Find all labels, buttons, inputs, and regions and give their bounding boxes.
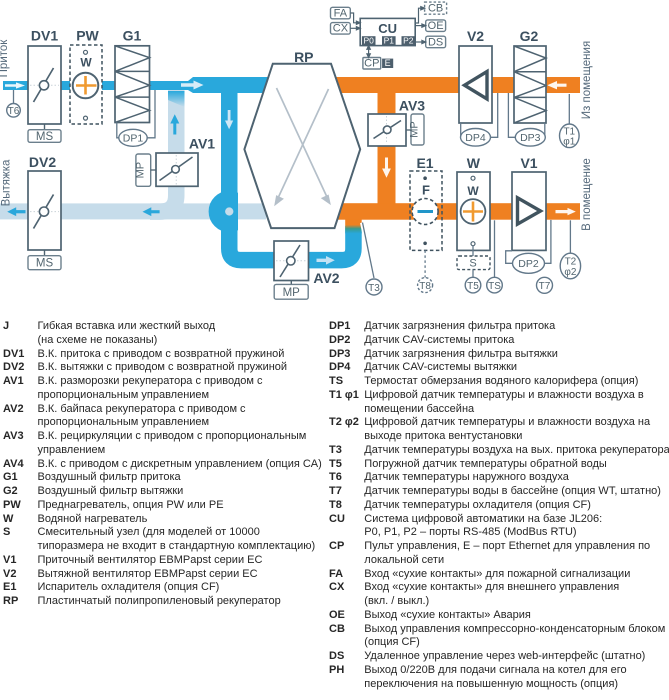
svg-text:E1: E1 <box>416 155 433 171</box>
svg-text:CU: CU <box>378 21 397 36</box>
svg-text:AV1: AV1 <box>189 136 215 152</box>
svg-text:W: W <box>467 184 479 198</box>
svg-text:AV3: AV3 <box>399 98 425 114</box>
svg-text:DP1: DP1 <box>123 133 144 145</box>
svg-text:F: F <box>422 183 430 198</box>
svg-text:MS: MS <box>36 258 54 270</box>
svg-text:CX: CX <box>333 23 349 35</box>
svg-text:Из помещения: Из помещения <box>581 41 593 119</box>
svg-text:OE: OE <box>428 20 444 32</box>
svg-text:T3: T3 <box>368 283 380 294</box>
svg-text:G1: G1 <box>123 28 142 44</box>
svg-text:DP3: DP3 <box>520 132 541 144</box>
svg-text:Вытяжка: Вытяжка <box>1 159 13 206</box>
svg-text:W: W <box>467 155 481 171</box>
svg-text:φ2: φ2 <box>564 267 576 278</box>
svg-text:E: E <box>385 58 391 68</box>
svg-text:V2: V2 <box>467 28 484 44</box>
svg-text:S: S <box>469 258 476 270</box>
svg-text:V1: V1 <box>520 155 537 171</box>
svg-text:CB: CB <box>428 3 443 15</box>
svg-text:T2: T2 <box>565 257 577 268</box>
svg-text:P0: P0 <box>363 35 374 45</box>
svg-text:AV2: AV2 <box>313 270 339 286</box>
svg-text:W: W <box>80 56 92 70</box>
svg-text:MS: MS <box>36 131 54 143</box>
svg-text:Приток: Приток <box>0 39 10 78</box>
svg-text:CP: CP <box>364 58 379 70</box>
svg-text:MP: MP <box>409 121 421 138</box>
svg-text:В помещение: В помещение <box>581 158 593 231</box>
svg-text:DV1: DV1 <box>31 28 58 44</box>
svg-text:PW: PW <box>76 28 99 44</box>
svg-text:MP: MP <box>134 162 146 179</box>
svg-text:T7: T7 <box>539 281 551 292</box>
svg-text:G2: G2 <box>520 28 539 44</box>
svg-text:P1: P1 <box>384 35 395 45</box>
svg-text:T6: T6 <box>8 106 20 117</box>
svg-text:T5: T5 <box>467 281 479 292</box>
svg-text:FA: FA <box>334 7 348 19</box>
svg-text:DP2: DP2 <box>518 258 539 270</box>
svg-text:DP4: DP4 <box>465 132 486 144</box>
svg-text:MP: MP <box>283 287 301 299</box>
svg-text:TS: TS <box>488 281 501 292</box>
svg-text:DV2: DV2 <box>29 154 56 170</box>
svg-text:RP: RP <box>294 49 313 65</box>
svg-text:P2: P2 <box>403 35 414 45</box>
svg-text:DS: DS <box>428 36 443 48</box>
svg-text:φ1: φ1 <box>563 137 575 148</box>
svg-text:T8: T8 <box>419 281 431 292</box>
